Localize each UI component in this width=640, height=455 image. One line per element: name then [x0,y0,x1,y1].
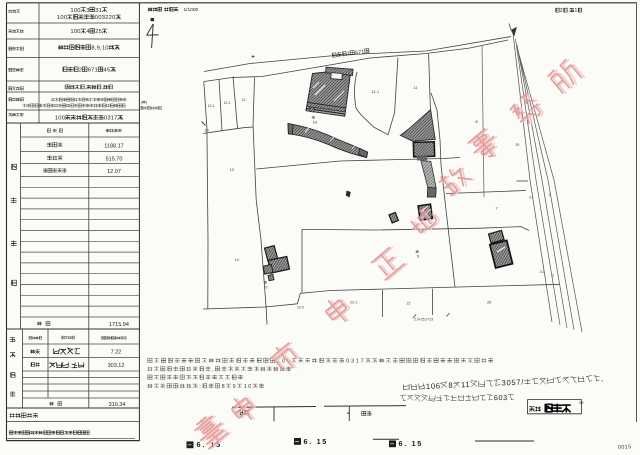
svg-text:671: 671 [355,49,365,56]
svg-text:1715.94: 1715.94 [109,322,129,328]
svg-text:1188.17: 1188.17 [104,143,123,149]
svg-text:1: 1 [549,193,551,197]
svg-text:100: 100 [70,8,80,14]
svg-text:303.12: 303.12 [108,363,125,369]
svg-text:0317: 0317 [104,116,118,122]
svg-text:671: 671 [88,68,98,74]
svg-text:2: 2 [560,8,563,14]
svg-text:13-1: 13-1 [208,104,215,108]
svg-text:11: 11 [414,85,419,90]
svg-text:8: 8 [476,119,479,124]
svg-text::: : [199,384,202,390]
svg-text:,: , [601,374,604,383]
svg-text:8: 8 [222,384,227,390]
svg-text:6. 15: 6. 15 [399,439,424,448]
svg-text:22-1: 22-1 [350,301,357,305]
svg-text:3: 3 [552,274,554,278]
svg-text:29: 29 [579,400,584,405]
svg-text:12: 12 [242,98,246,102]
svg-text:29: 29 [516,143,520,147]
svg-text:,: , [85,85,87,91]
svg-text:45: 45 [104,68,111,74]
svg-text:11: 11 [461,380,471,389]
svg-text:9: 9 [266,286,268,290]
svg-text:10: 10 [244,384,253,390]
svg-text:106: 106 [426,381,441,391]
svg-text:1/1000: 1/1000 [184,7,199,13]
svg-text:1: 1 [574,8,577,14]
svg-text:12-1: 12-1 [224,101,231,105]
svg-text:2: 2 [79,68,82,74]
svg-text:9: 9 [233,384,238,390]
svg-text:23-3: 23-3 [297,306,304,310]
svg-text:003220: 003220 [95,15,116,21]
svg-text:12.07: 12.07 [107,169,121,175]
svg-text:310.34: 310.34 [109,402,126,408]
svg-text:603: 603 [494,393,508,402]
svg-text:11-1: 11-1 [372,89,380,94]
svg-text:(: ( [141,101,143,105]
svg-text:3-1: 3-1 [529,196,534,200]
svg-text:0317: 0317 [346,359,365,365]
svg-text:25: 25 [95,29,102,35]
svg-text:3057/: 3057/ [501,377,524,387]
svg-text:7.22: 7.22 [111,350,122,356]
svg-text:): ) [146,101,148,105]
svg-text:,: , [101,85,103,91]
svg-text:22: 22 [407,302,411,306]
svg-text:8: 8 [448,381,453,390]
svg-text:13: 13 [230,167,235,172]
svg-text:100: 100 [57,15,67,21]
svg-text:6. 15: 6. 15 [304,437,329,446]
svg-text:7: 7 [496,206,499,211]
svg-text:3-1: 3-1 [540,270,545,274]
svg-text:14: 14 [235,257,240,262]
svg-text:.: . [69,363,71,370]
svg-text:8,9,10: 8,9,10 [91,46,108,52]
svg-text:8: 8 [417,255,419,259]
svg-text:515.70: 515.70 [106,156,123,162]
svg-text:28: 28 [487,301,491,305]
svg-text:31: 31 [95,8,102,14]
svg-text:0015: 0015 [618,444,632,451]
svg-text:100: 100 [55,116,65,122]
svg-text:100: 100 [70,29,80,35]
svg-text:,: , [212,367,215,373]
svg-text:3: 3 [86,8,89,14]
svg-text:10: 10 [313,120,317,124]
svg-text:2.0+25.2=23: 2.0+25.2=23 [414,318,433,322]
